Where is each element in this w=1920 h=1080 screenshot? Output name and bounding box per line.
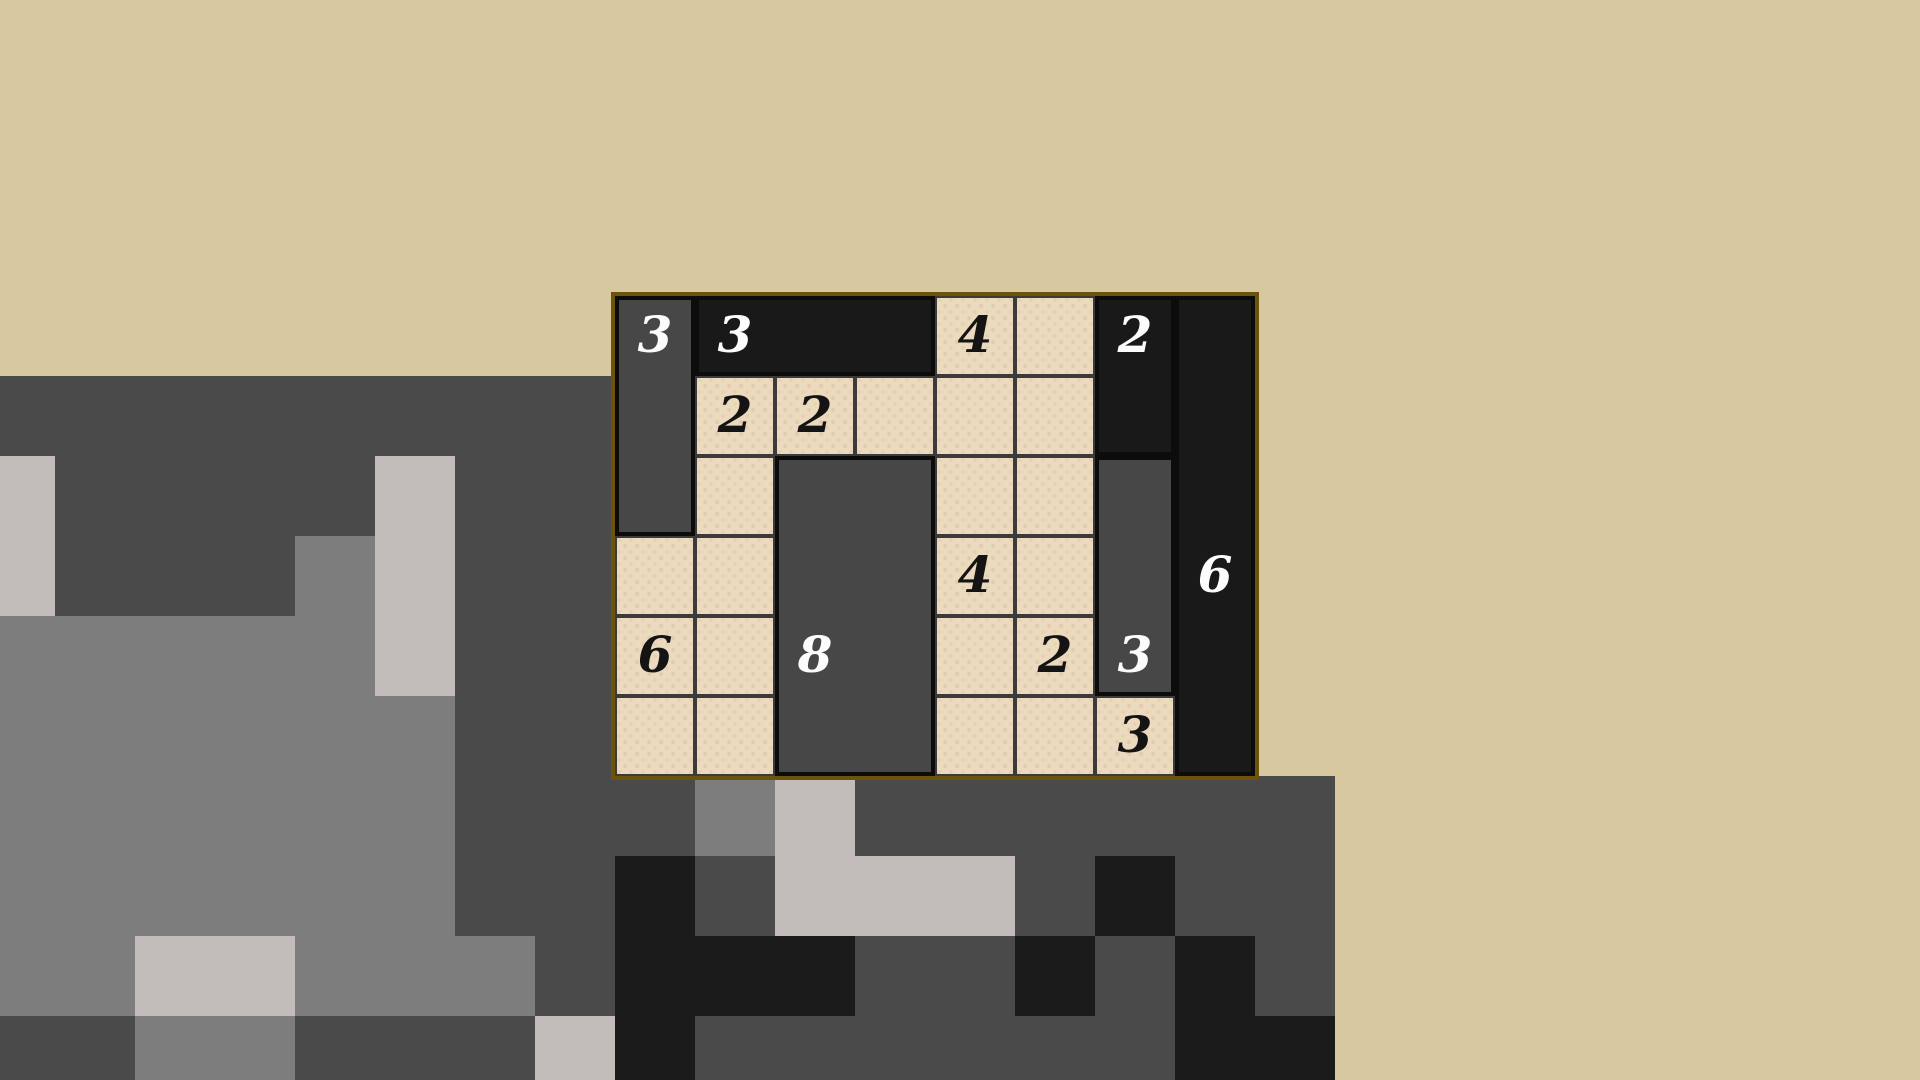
bg-pixel	[135, 856, 215, 936]
bg-pixel	[535, 536, 615, 616]
game-stage: 3326834224623	[0, 0, 1920, 1080]
bg-pixel	[935, 936, 1015, 1016]
bg-pixel	[695, 856, 775, 936]
bg-pixel	[695, 776, 775, 856]
grid-cell[interactable]	[615, 536, 695, 616]
bg-pixel	[1255, 776, 1335, 856]
bg-pixel	[455, 456, 535, 536]
bg-pixel	[0, 936, 55, 1016]
bg-pixel	[215, 1016, 295, 1080]
grid-cell[interactable]	[1015, 536, 1095, 616]
bg-pixel	[375, 696, 455, 776]
bg-pixel	[855, 936, 935, 1016]
bg-pixel	[1095, 776, 1175, 856]
bg-pixel	[935, 1016, 1015, 1080]
bg-pixel	[455, 1016, 535, 1080]
bg-pixel	[535, 1016, 615, 1080]
bg-pixel	[775, 856, 855, 936]
bg-pixel	[1175, 776, 1255, 856]
grid-cell[interactable]	[695, 616, 775, 696]
bg-pixel	[855, 776, 935, 856]
rect-size-number: 2	[1095, 296, 1175, 376]
clue-number[interactable]: 4	[935, 296, 1015, 376]
bg-pixel	[455, 936, 535, 1016]
bg-pixel	[1255, 1016, 1335, 1080]
bg-pixel	[55, 1016, 135, 1080]
grid-cell[interactable]	[1015, 456, 1095, 536]
bg-pixel	[1255, 936, 1335, 1016]
bg-pixel	[295, 856, 375, 936]
rect-size-number: 8	[775, 616, 855, 696]
bg-pixel	[375, 616, 455, 696]
bg-pixel	[55, 696, 135, 776]
bg-pixel	[535, 696, 615, 776]
bg-pixel	[135, 376, 215, 456]
bg-pixel	[55, 376, 135, 456]
bg-pixel	[215, 696, 295, 776]
bg-pixel	[55, 536, 135, 616]
bg-pixel	[295, 1016, 375, 1080]
bg-pixel	[775, 936, 855, 1016]
bg-pixel	[455, 536, 535, 616]
bg-pixel	[295, 456, 375, 536]
bg-pixel	[455, 376, 535, 456]
bg-pixel	[135, 1016, 215, 1080]
bg-pixel	[0, 856, 55, 936]
grid-cell[interactable]	[1015, 696, 1095, 776]
bg-pixel	[135, 696, 215, 776]
bg-pixel	[775, 776, 855, 856]
bg-pixel	[215, 936, 295, 1016]
grid-cell[interactable]	[935, 456, 1015, 536]
bg-pixel	[535, 456, 615, 536]
bg-pixel	[535, 856, 615, 936]
bg-pixel	[1015, 776, 1095, 856]
bg-pixel	[455, 616, 535, 696]
grid-cell[interactable]	[615, 696, 695, 776]
bg-pixel	[55, 856, 135, 936]
bg-pixel	[215, 376, 295, 456]
rect-size-number: 3	[1095, 616, 1175, 696]
bg-pixel	[455, 696, 535, 776]
bg-pixel	[455, 776, 535, 856]
bg-pixel	[935, 856, 1015, 936]
bg-pixel	[935, 776, 1015, 856]
bg-pixel	[135, 536, 215, 616]
bg-pixel	[215, 776, 295, 856]
bg-pixel	[1175, 936, 1255, 1016]
grid-cell[interactable]	[855, 376, 935, 456]
bg-pixel	[135, 616, 215, 696]
bg-pixel	[855, 856, 935, 936]
rect-size-number: 6	[1175, 536, 1255, 616]
bg-pixel	[215, 456, 295, 536]
grid-cell[interactable]	[935, 616, 1015, 696]
clue-number[interactable]: 3	[1095, 696, 1175, 776]
bg-pixel	[375, 936, 455, 1016]
clue-number[interactable]: 2	[1015, 616, 1095, 696]
bg-pixel	[295, 776, 375, 856]
bg-pixel	[775, 1016, 855, 1080]
bg-pixel	[295, 696, 375, 776]
bg-pixel	[535, 776, 615, 856]
bg-pixel	[1015, 856, 1095, 936]
grid-cell[interactable]	[935, 696, 1015, 776]
bg-pixel	[695, 936, 775, 1016]
grid-cell[interactable]	[1015, 296, 1095, 376]
bg-pixel	[615, 776, 695, 856]
bg-pixel	[695, 1016, 775, 1080]
bg-pixel	[55, 616, 135, 696]
bg-pixel	[55, 776, 135, 856]
bg-pixel	[55, 456, 135, 536]
bg-pixel	[855, 1016, 935, 1080]
bg-pixel	[295, 616, 375, 696]
bg-pixel	[1175, 1016, 1255, 1080]
bg-pixel	[135, 776, 215, 856]
grid-cell[interactable]	[695, 456, 775, 536]
bg-pixel	[375, 1016, 455, 1080]
bg-pixel	[215, 616, 295, 696]
bg-pixel	[1175, 856, 1255, 936]
grid-cell[interactable]	[935, 376, 1015, 456]
clue-number[interactable]: 6	[615, 616, 695, 696]
bg-pixel	[375, 376, 455, 456]
bg-pixel	[375, 856, 455, 936]
bg-pixel	[0, 776, 55, 856]
bg-pixel	[1095, 856, 1175, 936]
bg-pixel	[0, 696, 55, 776]
rect-size-number: 3	[695, 296, 775, 376]
bg-pixel	[1015, 1016, 1095, 1080]
grid-cell[interactable]	[695, 696, 775, 776]
bg-pixel	[55, 936, 135, 1016]
bg-pixel	[615, 1016, 695, 1080]
bg-pixel	[375, 776, 455, 856]
puzzle-board[interactable]: 3326834224623	[611, 292, 1259, 780]
bg-pixel	[0, 1016, 55, 1080]
bg-pixel	[0, 456, 55, 536]
rect-size-number: 3	[615, 296, 695, 376]
bg-pixel	[0, 376, 55, 456]
bg-pixel	[615, 936, 695, 1016]
bg-pixel	[1095, 936, 1175, 1016]
bg-pixel	[535, 616, 615, 696]
bg-pixel	[1015, 936, 1095, 1016]
bg-pixel	[375, 456, 455, 536]
bg-pixel	[615, 856, 695, 936]
bg-pixel	[295, 376, 375, 456]
bg-pixel	[295, 936, 375, 1016]
bg-pixel	[455, 856, 535, 936]
bg-pixel	[0, 616, 55, 696]
bg-pixel	[295, 536, 375, 616]
bg-pixel	[215, 536, 295, 616]
bg-pixel	[135, 456, 215, 536]
bg-pixel	[1255, 856, 1335, 936]
bg-pixel	[1095, 1016, 1175, 1080]
grid-cell[interactable]	[1015, 376, 1095, 456]
bg-pixel	[0, 536, 55, 616]
bg-pixel	[135, 936, 215, 1016]
clue-number[interactable]: 4	[935, 536, 1015, 616]
bg-pixel	[535, 936, 615, 1016]
clue-number[interactable]: 2	[775, 376, 855, 456]
clue-number[interactable]: 2	[695, 376, 775, 456]
bg-pixel	[215, 856, 295, 936]
grid-cell[interactable]	[695, 536, 775, 616]
bg-pixel	[375, 536, 455, 616]
bg-pixel	[535, 376, 615, 456]
